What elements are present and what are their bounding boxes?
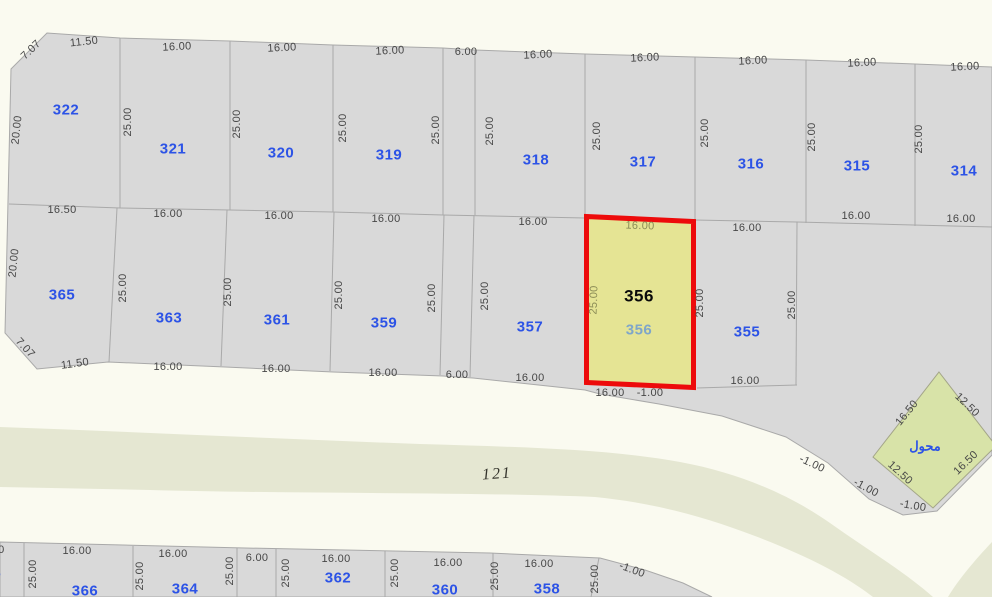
- parcel-355-number: 355: [734, 324, 761, 341]
- dim-label: 25.00: [134, 561, 146, 590]
- dim-label: 16.00: [267, 41, 297, 55]
- parcel-357-number: 357: [517, 319, 544, 336]
- dim-label: 16.00: [158, 548, 187, 560]
- dim-label: 25.00: [389, 558, 401, 587]
- parcel-317-number: 317: [630, 154, 657, 171]
- dim-label: 25.00: [479, 281, 491, 310]
- parcel-315-number: 315: [844, 158, 871, 175]
- dim-label: 16.00: [371, 213, 400, 225]
- parcel-358-number: 358: [534, 581, 561, 597]
- dim-label-clipped: 16.00: [0, 544, 5, 556]
- dim-label: 25.00: [484, 116, 496, 145]
- dim-label: 16.00: [153, 208, 182, 220]
- dim-label: 16.00: [847, 56, 877, 70]
- parcel-map-viewport[interactable]: 7.07 11.50 16.00 16.00 16.00 6.00 16.00 …: [0, 0, 992, 597]
- dim-label: 16.00: [630, 51, 660, 65]
- dim-label: 16.00: [523, 48, 553, 62]
- dim-label: 25.00: [913, 124, 925, 153]
- transformer-parcel-label: محول: [909, 439, 941, 455]
- dim-label: 25.00: [280, 558, 292, 587]
- dim-label: 16.00: [375, 44, 405, 58]
- dim-label: 25.00: [122, 107, 134, 136]
- dim-label: 16.00: [950, 60, 980, 74]
- parcel-366-number: 366: [72, 583, 99, 597]
- dim-label: 16.00: [368, 367, 397, 379]
- dim-label: 16.00: [264, 210, 293, 222]
- parcel-322-number: 322: [53, 102, 80, 119]
- dim-label: 16.00: [946, 213, 975, 225]
- road-121-label: 121: [481, 464, 512, 483]
- dim-label: 16.50: [47, 204, 76, 216]
- dim-label: 25.00: [224, 556, 236, 585]
- dim-label: 16.00: [515, 372, 544, 384]
- dim-label: 25.00: [27, 559, 39, 588]
- dim-label: 16.00: [518, 216, 547, 228]
- parcel-362-number: 362: [325, 570, 352, 587]
- parcel-365-number: 365: [49, 287, 76, 304]
- parcel-319-number: 319: [376, 147, 403, 164]
- dim-label: 25.00: [337, 113, 349, 142]
- dim-label: 25.00: [591, 121, 603, 150]
- parcel-map-canvas[interactable]: 7.07 11.50 16.00 16.00 16.00 6.00 16.00 …: [0, 0, 992, 597]
- dim-label: 16.00: [841, 210, 870, 222]
- parcel-number-clipped: 368: [0, 565, 1, 582]
- parcel-314-number: 314: [951, 163, 978, 180]
- dim-label: 25.00: [589, 564, 601, 593]
- selected-parcel-number: 356: [624, 287, 654, 306]
- parcel-320-number: 320: [268, 145, 295, 162]
- dim-label: 16.00: [321, 553, 350, 565]
- dim-label: 16.00: [162, 40, 192, 54]
- dim-label: 25.00: [426, 283, 438, 312]
- parcel-321-number: 321: [160, 141, 187, 158]
- dim-label: 16.00: [261, 363, 290, 375]
- selected-parcel-secondary-number: 356: [626, 322, 653, 339]
- parcel-318-number: 318: [523, 152, 550, 169]
- dim-label: 16.00: [433, 557, 462, 569]
- parcel-363-number: 363: [156, 310, 183, 327]
- dim-label: 25.00: [786, 290, 798, 319]
- dim-label: 16.00: [625, 219, 654, 232]
- parcel-360-number: 360: [432, 582, 459, 597]
- dim-label: 25.00: [231, 109, 243, 138]
- dim-label: 16.00: [730, 375, 759, 387]
- dim-label: 6.00: [446, 369, 469, 381]
- dim-label: 25.00: [117, 273, 129, 302]
- dim-label: 16.00: [595, 387, 624, 399]
- dim-label: 16.00: [732, 222, 761, 234]
- dim-label: 16.00: [153, 361, 182, 373]
- dim-label: 16.00: [524, 558, 553, 570]
- dim-label: 16.00: [62, 545, 91, 557]
- dim-label: 25.00: [333, 280, 345, 309]
- dim-label: 16.00: [738, 54, 768, 68]
- dim-label: 25.00: [222, 277, 234, 306]
- parcel-316-number: 316: [738, 156, 765, 173]
- parcel-364-number: 364: [172, 581, 199, 597]
- dim-label: 25.00: [694, 288, 706, 317]
- dim-label: 6.00: [246, 552, 269, 564]
- dim-label: 11.50: [60, 356, 90, 372]
- dim-label: 25.00: [430, 115, 442, 144]
- dim-label: 25.00: [587, 285, 600, 314]
- dim-label: -1.00: [637, 387, 664, 399]
- parcel-361-number: 361: [264, 312, 291, 329]
- dim-label: 6.00: [455, 46, 478, 58]
- dim-label: 25.00: [806, 122, 818, 151]
- dim-label: 25.00: [489, 561, 501, 590]
- south-parcel-block[interactable]: [0, 542, 712, 597]
- dim-label: 25.00: [699, 118, 711, 147]
- parcel-359-number: 359: [371, 315, 398, 332]
